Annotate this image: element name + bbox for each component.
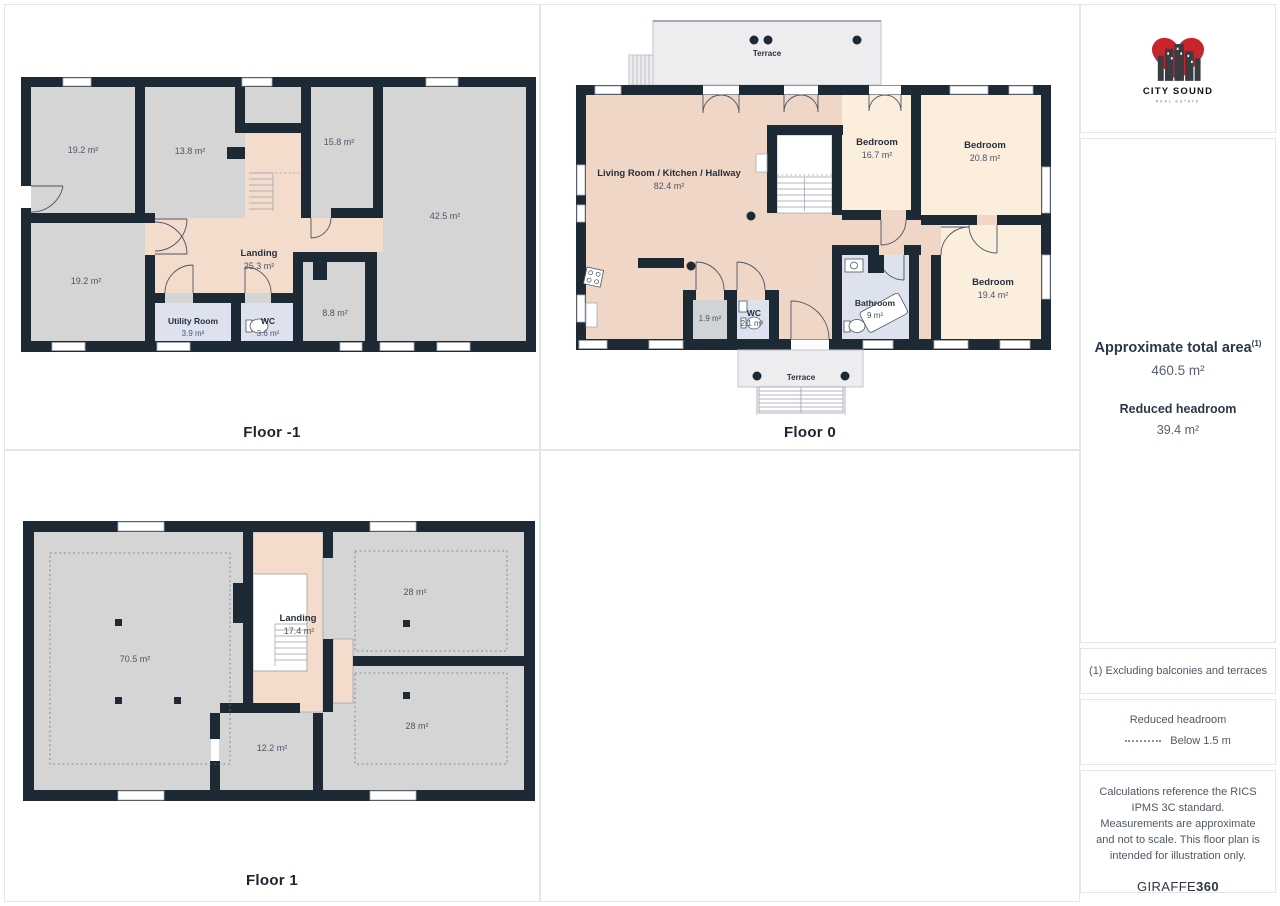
room-name: Utility Room xyxy=(168,316,218,326)
floor-0-plan: Terrace xyxy=(541,5,1080,425)
panel-empty xyxy=(540,450,1080,902)
reduced-headroom-value: 39.4 m² xyxy=(1081,423,1275,437)
footnote-marker: (1) xyxy=(1252,339,1262,348)
counter-icon xyxy=(586,303,597,327)
footnote-text: (1) Excluding balconies and terraces xyxy=(1089,665,1267,677)
brand-card: CITY SOUND REAL ESTATE xyxy=(1080,4,1276,133)
room-area: 3.9 m² xyxy=(182,329,205,338)
summary-card: Approximate total area(1) 460.5 m² Reduc… xyxy=(1080,138,1276,643)
floor-minus1-plan: 19.2 m² 13.8 m² 15.8 m² 42.5 m² 19.2 m² … xyxy=(5,5,540,425)
room-area: 8.8 m² xyxy=(322,308,348,318)
legend-title: Reduced headroom xyxy=(1081,714,1275,726)
disclaimer-card: Calculations reference the RICS IPMS 3C … xyxy=(1080,770,1276,893)
legend-dashed-label: Below 1.5 m xyxy=(1170,735,1231,747)
total-area-label: Approximate total area(1) xyxy=(1081,339,1275,356)
room-area: 16.7 m² xyxy=(862,150,893,160)
room-name: WC xyxy=(747,308,761,318)
room-area: 17.4 m² xyxy=(284,626,315,636)
room-name: WC xyxy=(261,316,275,326)
panel-floor-1: 70.5 m² Landing 17.4 m² 28 m² 28 m² 12.2… xyxy=(4,450,540,902)
disclaimer-text: Calculations reference the RICS IPMS 3C … xyxy=(1095,785,1261,865)
room-area: 28 m² xyxy=(403,587,426,597)
footnote-card: (1) Excluding balconies and terraces xyxy=(1080,648,1276,694)
room-area: 9 m² xyxy=(867,311,883,320)
room-name: Landing xyxy=(280,613,317,624)
room-area: 19.4 m² xyxy=(978,290,1009,300)
room-area: 12.2 m² xyxy=(257,743,288,753)
room-area: 13.8 m² xyxy=(175,146,206,156)
brand-logo: CITY SOUND REAL ESTATE xyxy=(1142,31,1214,107)
floor-title: Floor 1 xyxy=(5,872,539,889)
column-dot xyxy=(687,262,696,271)
room-name: Living Room / Kitchen / Hallway xyxy=(597,168,741,179)
floor-1-plan: 70.5 m² Landing 17.4 m² 28 m² 28 m² 12.2… xyxy=(5,451,540,881)
floorplan-sheet: 19.2 m² 13.8 m² 15.8 m² 42.5 m² 19.2 m² … xyxy=(0,0,1280,906)
terrace-top: Terrace xyxy=(629,21,881,85)
brand-name: CITY SOUND xyxy=(1143,85,1213,96)
room-name: Bedroom xyxy=(964,140,1006,151)
room-area: 15.8 m² xyxy=(324,137,355,147)
floor-title: Floor -1 xyxy=(5,424,539,441)
room-name: Bathroom xyxy=(855,298,896,308)
room-area: 19.2 m² xyxy=(71,276,102,286)
giraffe360-credit: GIRAFFE360 xyxy=(1095,878,1261,897)
terrace-bottom: Terrace xyxy=(738,350,863,415)
reduced-headroom-label: Reduced headroom xyxy=(1081,402,1275,416)
column-dot xyxy=(747,212,756,221)
room-area: 42.5 m² xyxy=(430,211,461,221)
stove-icon xyxy=(583,267,603,287)
room-area: 1.9 m² xyxy=(699,314,722,323)
room-area: 25.3 m² xyxy=(244,261,275,271)
panel-floor-0: Terrace xyxy=(540,4,1080,450)
room-area: 3.6 m² xyxy=(257,329,280,338)
terrace-label: Terrace xyxy=(787,373,816,382)
room-name: Landing xyxy=(241,248,278,259)
floor-title: Floor 0 xyxy=(541,424,1079,441)
room-name: Bedroom xyxy=(856,137,898,148)
room-area: 2.1 m² xyxy=(741,319,764,328)
room-name: Bedroom xyxy=(972,277,1014,288)
panel-floor-minus1: 19.2 m² 13.8 m² 15.8 m² 42.5 m² 19.2 m² … xyxy=(4,4,540,450)
total-area-value: 460.5 m² xyxy=(1081,363,1275,378)
room-area: 19.2 m² xyxy=(68,145,99,155)
room-area: 28 m² xyxy=(405,721,428,731)
brand-tagline: REAL ESTATE xyxy=(1156,99,1200,103)
legend-card: Reduced headroom Below 1.5 m xyxy=(1080,699,1276,765)
room-area: 20.8 m² xyxy=(970,153,1001,163)
dashed-line-icon xyxy=(1125,740,1161,742)
room-area: 82.4 m² xyxy=(654,181,685,191)
terrace-label: Terrace xyxy=(753,49,782,58)
room-area: 70.5 m² xyxy=(120,654,151,664)
